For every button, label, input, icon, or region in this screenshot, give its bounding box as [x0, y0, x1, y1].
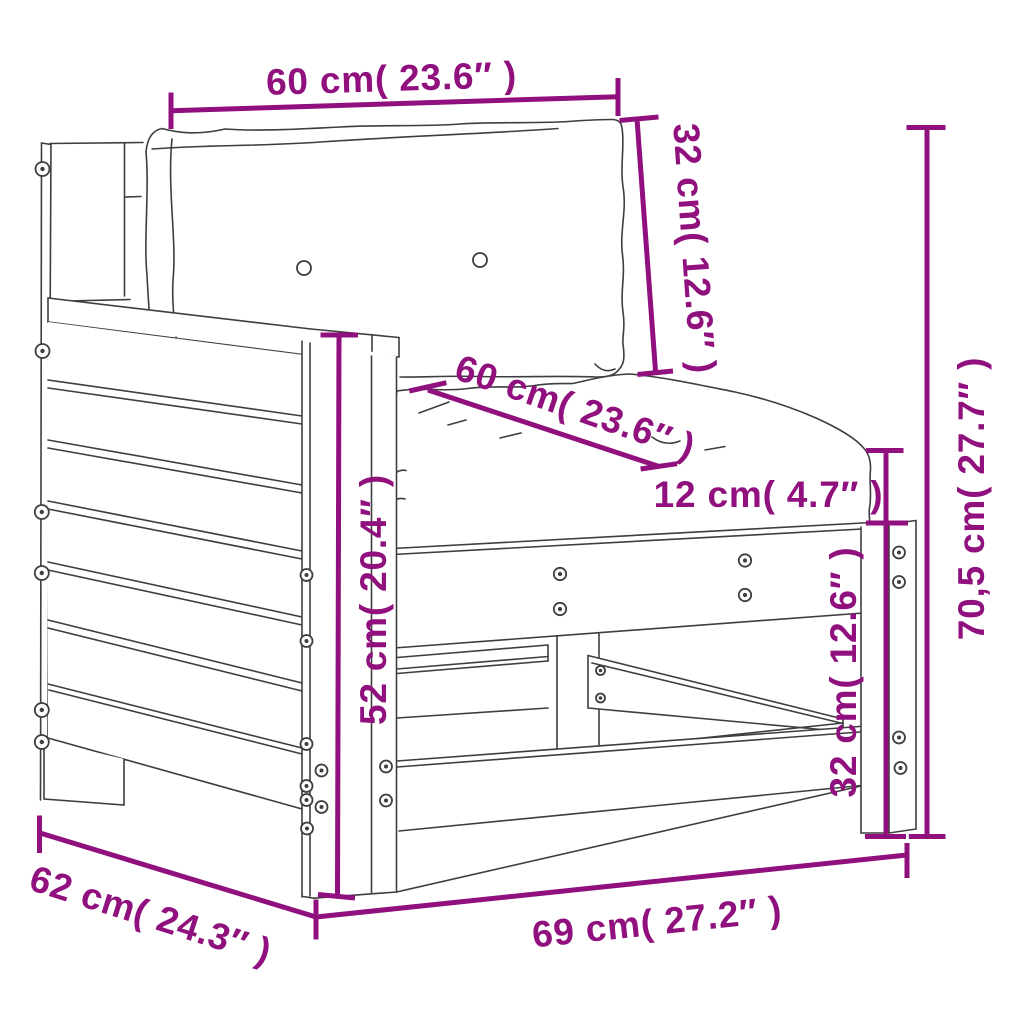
svg-text:70,5 cm( 27.7″ ): 70,5 cm( 27.7″ ) [951, 357, 992, 641]
svg-text:32 cm( 12.6″ ): 32 cm( 12.6″ ) [823, 546, 864, 797]
svg-text:52 cm( 20.4″ ): 52 cm( 20.4″ ) [353, 474, 394, 725]
svg-text:12 cm( 4.7″ ): 12 cm( 4.7″ ) [654, 474, 884, 515]
svg-text:60 cm( 23.6″ ): 60 cm( 23.6″ ) [265, 54, 517, 103]
